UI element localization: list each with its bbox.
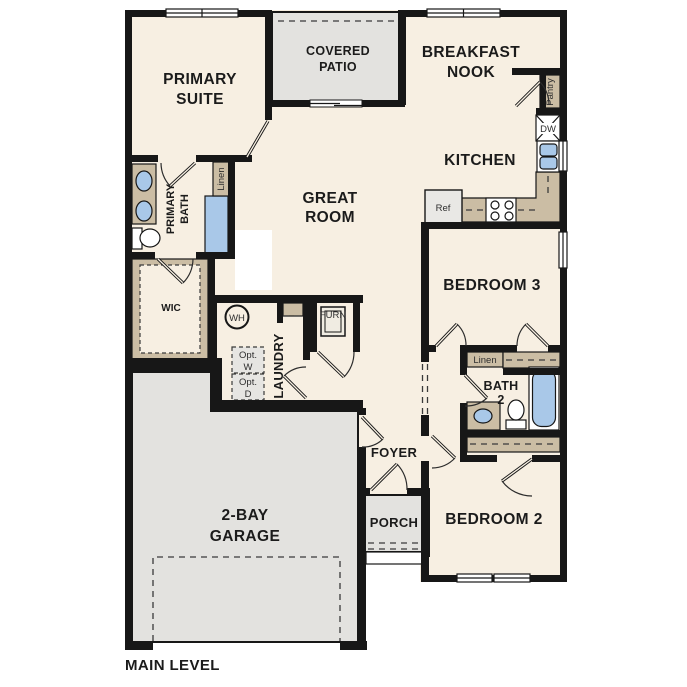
primary-shower	[205, 196, 228, 253]
vanity-sink-2	[136, 201, 152, 221]
wic-closet: WIC	[132, 259, 208, 365]
kitchen-sink	[537, 141, 560, 172]
level-title: MAIN LEVEL	[125, 657, 220, 674]
laundry-label: LAUNDRY	[271, 333, 286, 398]
opt-washer-label-line2: W	[244, 362, 253, 373]
opt-dryer-label-line1: Opt.	[239, 377, 257, 388]
dishwasher: DW	[536, 115, 560, 141]
opt-dryer-label-line2: D	[245, 389, 252, 400]
floor-plan-svg: COVERED PATIO 2-BAY GARAGE PORCH WIC Ref	[0, 0, 687, 687]
range-cooktop	[486, 198, 516, 222]
great-room-label-line2: ROOM	[305, 209, 355, 226]
primary-suite-label-line1: PRIMARY	[163, 71, 237, 88]
bedroom2-label: BEDROOM 2	[445, 511, 542, 528]
primary-toilet	[132, 228, 160, 249]
porch: PORCH	[364, 495, 425, 564]
primary-suite-label-line2: SUITE	[176, 91, 224, 108]
garage-label-line1: 2-BAY	[221, 507, 268, 524]
primary-bath-label-line2: BATH	[179, 194, 191, 224]
kitchen-window	[559, 141, 567, 171]
patio-slider-door	[310, 100, 362, 107]
hall-linen-label: Linen	[473, 355, 496, 366]
bedroom2-window-right	[494, 574, 530, 582]
breakfast-nook-label-line2: NOOK	[447, 64, 496, 81]
bedroom3-label: BEDROOM 3	[443, 277, 540, 294]
bedroom2-closet	[467, 437, 560, 452]
covered-patio-label-line1: COVERED	[306, 44, 370, 58]
floor-plan-page: COVERED PATIO 2-BAY GARAGE PORCH WIC Ref	[0, 0, 687, 687]
great-room-label-line1: GREAT	[302, 190, 357, 207]
bath2-sink	[474, 409, 492, 423]
furnace-label: FURN	[320, 310, 347, 321]
primary-suite-window	[166, 9, 238, 17]
kitchen-label: KITCHEN	[444, 152, 516, 169]
vanity-sink-1	[136, 171, 152, 191]
breakfast-nook-label-line1: BREAKFAST	[422, 44, 520, 61]
foyer-label: FOYER	[371, 445, 418, 460]
garage: 2-BAY GARAGE	[132, 372, 358, 643]
water-heater-label: WH	[229, 313, 245, 324]
bath2-label-line2: 2	[497, 393, 504, 407]
furnace: FURN	[320, 307, 347, 336]
breakfast-nook-window	[427, 9, 500, 17]
bath2-toilet	[506, 400, 526, 429]
dishwasher-label: DW	[540, 124, 556, 135]
opt-washer-label-line1: Opt.	[239, 350, 257, 361]
bedroom3-window	[559, 232, 567, 268]
wic-label: WIC	[161, 303, 180, 314]
primary-linen-label: Linen	[216, 167, 227, 190]
garage-label-line2: GARAGE	[210, 528, 280, 545]
bedroom2-window-left	[457, 574, 492, 582]
covered-patio: COVERED PATIO	[272, 12, 405, 104]
bath2-tub	[529, 367, 559, 430]
porch-label: PORCH	[370, 515, 418, 530]
primary-bath-label-line1: PRIMARY	[165, 183, 177, 234]
bath2-label-line1: BATH	[484, 379, 519, 393]
fridge-label: Ref	[436, 203, 451, 214]
covered-patio-label-line2: PATIO	[319, 60, 357, 74]
